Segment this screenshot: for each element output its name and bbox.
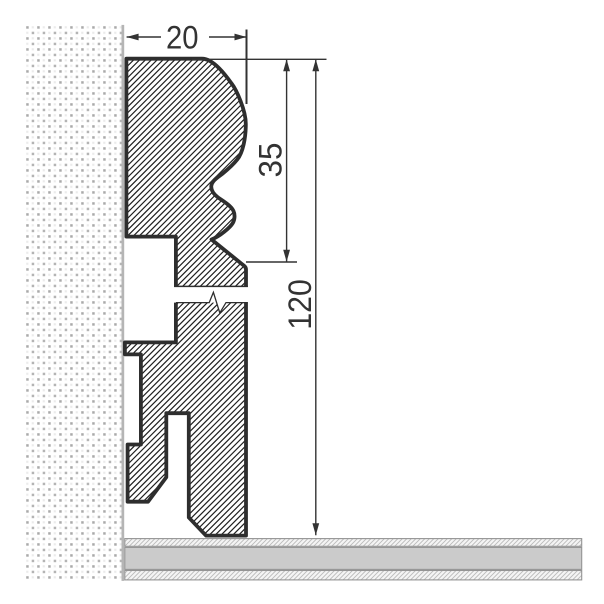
svg-text:120: 120 [282,279,318,330]
svg-text:35: 35 [252,143,288,178]
svg-text:20: 20 [166,19,199,55]
